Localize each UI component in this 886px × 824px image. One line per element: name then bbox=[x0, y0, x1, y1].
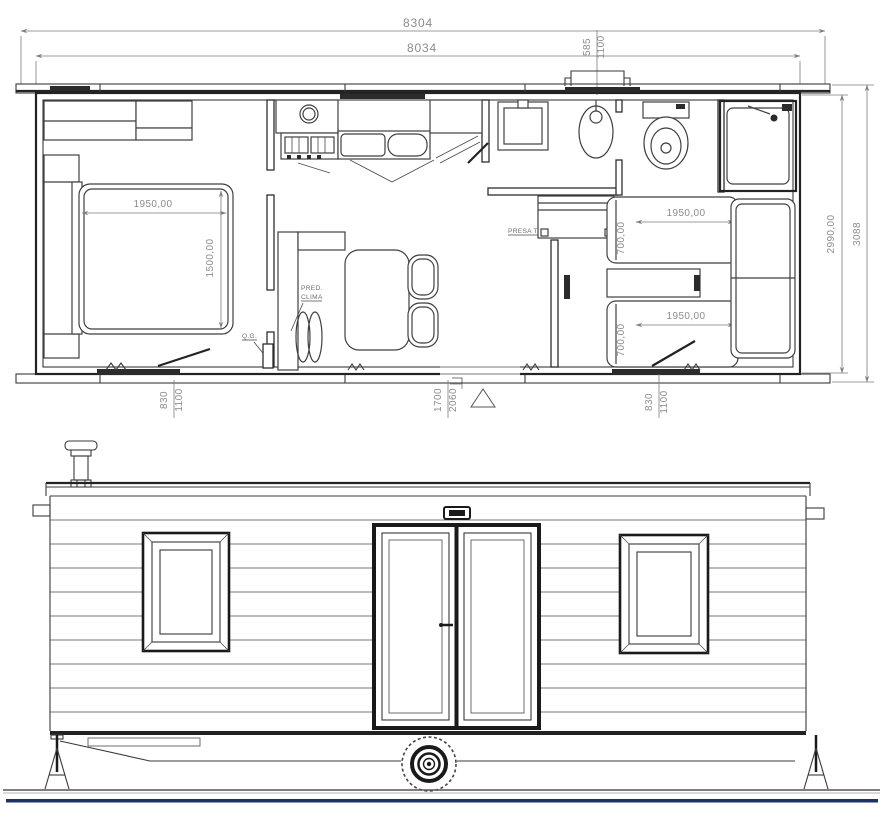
label-climate-2: CLIMA bbox=[301, 294, 323, 301]
dim-roof-length-text: 8304 bbox=[403, 16, 433, 30]
door-lamp bbox=[444, 507, 470, 519]
side-bracket-left bbox=[33, 505, 50, 516]
overhead-shelf bbox=[136, 128, 192, 140]
dim-overall-width-text: 3088 bbox=[852, 222, 863, 246]
jack-left bbox=[45, 735, 69, 789]
roof-edge bbox=[46, 483, 810, 496]
sideboard bbox=[298, 232, 345, 250]
basin-tap bbox=[590, 111, 602, 123]
dim-window-right-height: 1100 bbox=[659, 390, 670, 413]
plan-window-right bbox=[612, 369, 700, 375]
dim-window-right-width: 830 bbox=[644, 393, 655, 411]
floor-rail bbox=[50, 731, 806, 735]
hand-basin bbox=[579, 106, 613, 158]
flush-button bbox=[676, 104, 685, 109]
wheel bbox=[401, 736, 457, 792]
electrical-panel bbox=[263, 344, 273, 368]
window-right bbox=[620, 535, 708, 653]
bench bbox=[278, 232, 298, 370]
washbasin-tap bbox=[518, 100, 528, 108]
bedroom-twin: 1950,00 700,00 1950,00 700,00 bbox=[607, 197, 795, 370]
bedroom-main: 1950,00 1500,00 Q.G. bbox=[44, 101, 273, 370]
overhead-cabinet bbox=[136, 101, 192, 128]
dim-double-bed-width: 1500,00 bbox=[205, 238, 216, 277]
washbasin bbox=[498, 102, 548, 150]
entry-marker-triangle bbox=[471, 389, 495, 407]
chimney bbox=[65, 441, 97, 487]
dimension-widths: 2990,00 3088 bbox=[802, 85, 874, 382]
plan-window-left bbox=[97, 369, 180, 375]
side-bracket-right bbox=[806, 508, 824, 519]
baseline-rule bbox=[6, 799, 878, 803]
shower-mixer bbox=[782, 104, 792, 111]
dim-single-bottom-length: 1950,00 bbox=[667, 311, 706, 322]
dim-window-left-width: 830 bbox=[159, 391, 170, 409]
dim-double-bed-length: 1950,00 bbox=[134, 199, 173, 210]
dim-single-bottom-width: 700,00 bbox=[616, 323, 627, 356]
entry-door bbox=[374, 525, 539, 728]
dim-door-width: 1700 bbox=[433, 388, 444, 412]
front-elevation bbox=[3, 441, 880, 803]
tall-cabinet bbox=[430, 100, 482, 133]
bedside-shelf bbox=[607, 269, 700, 297]
label-electrical-panel: Q.G. bbox=[242, 333, 257, 340]
dim-single-top-width: 700,00 bbox=[616, 221, 627, 254]
dining-table bbox=[345, 250, 409, 350]
label-climate-1: PRED. bbox=[301, 285, 323, 292]
plan-window-bath bbox=[565, 87, 640, 92]
bedroom-door-leaf bbox=[158, 349, 210, 366]
floor-plan: 8304 8034 585 1100 bbox=[16, 16, 874, 418]
dining-area: PRED. CLIMA bbox=[278, 232, 539, 370]
dimension-body-length: 8034 bbox=[36, 41, 800, 84]
window-left bbox=[143, 533, 229, 651]
chassis bbox=[45, 731, 828, 792]
tv-desk bbox=[538, 196, 614, 238]
dim-single-top-length: 1950,00 bbox=[667, 208, 706, 219]
plan-window-bedroom bbox=[50, 86, 90, 91]
dim-body-width-text: 2990,00 bbox=[826, 214, 837, 253]
shower-drain bbox=[771, 115, 778, 122]
kitchen bbox=[276, 100, 482, 182]
shower bbox=[720, 101, 796, 191]
mobile-home-drawing: 8304 8034 585 1100 bbox=[0, 0, 886, 824]
roof-vent: 585 1100 bbox=[565, 30, 630, 95]
jack-right bbox=[804, 735, 828, 789]
dim-door-height: 2060 bbox=[448, 388, 459, 412]
dim-window-left-height: 1100 bbox=[174, 388, 185, 411]
technical-drawing-page: 8304 8034 585 1100 bbox=[0, 0, 886, 824]
dim-vent-width-text: 585 bbox=[582, 38, 593, 56]
dimension-openings: 830 1100 1700 2060 830 1100 bbox=[159, 374, 670, 418]
dim-vent-offset-text: 1100 bbox=[596, 35, 607, 58]
sliding-door-handle bbox=[564, 275, 570, 299]
plan-window-kitchen bbox=[340, 94, 425, 99]
dim-body-length-text: 8034 bbox=[407, 41, 437, 55]
